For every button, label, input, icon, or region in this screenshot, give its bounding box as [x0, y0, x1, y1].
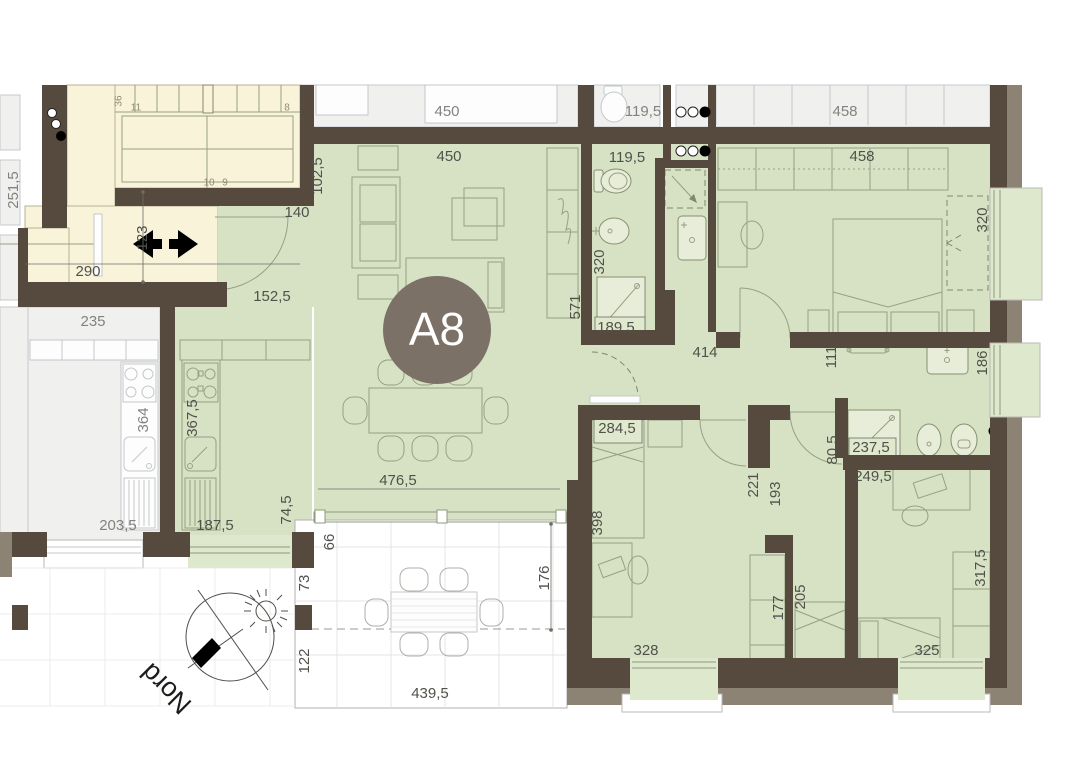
dimension-label: 123: [134, 225, 151, 250]
dimension-label: 439,5: [411, 685, 449, 702]
dimension-label: 367,5: [184, 399, 201, 437]
dimension-label: 450: [434, 103, 459, 120]
sink-icon: [927, 344, 968, 374]
dimension-label: 186: [974, 350, 991, 375]
dimension-label: 221: [745, 472, 762, 497]
dimension-label: 284,5: [598, 420, 636, 437]
dimension-label: 177: [770, 595, 787, 620]
dimension-label: 450: [436, 148, 461, 165]
north-needle-icon: [192, 638, 221, 668]
dimension-label: 237,5: [852, 439, 890, 456]
dimension-label: 140: [284, 204, 309, 221]
dimension-label: 10: [203, 178, 215, 189]
dimension-label: 364: [135, 407, 152, 432]
dimension-label: 119,5: [625, 103, 661, 120]
dimension-label: 398: [589, 510, 606, 535]
dimension-label: 249,5: [854, 468, 892, 485]
dimension-label: 290: [75, 263, 100, 280]
vanity-sink-icon: [678, 216, 706, 260]
unit-badge-label: A8: [409, 303, 465, 355]
dimension-label: 320: [591, 249, 608, 274]
dimension-label: 205: [792, 584, 809, 609]
neighbor-window-recess: [44, 540, 143, 568]
unit-badge: A8: [383, 276, 491, 384]
dimension-label: 458: [849, 148, 874, 165]
floor-plan-a8: A8 Nord 450119,5458450119,5458102,514012…: [0, 0, 1076, 780]
dimension-label: 176: [536, 565, 553, 590]
dimension-label: 80,5: [824, 435, 841, 464]
dimension-label: 187,5: [196, 517, 234, 534]
bidet-icon: [951, 424, 977, 456]
staircase: [115, 85, 300, 188]
dimension-label: 122: [296, 648, 313, 673]
compass-label: Nord: [135, 657, 198, 720]
dimension-label: 36: [114, 95, 125, 107]
dimension-label: 73: [296, 575, 313, 592]
floorplan-page: A8 Nord 450119,5458450119,5458102,514012…: [0, 0, 1076, 780]
dimension-label: 74,5: [278, 495, 295, 524]
dimension-label: 189,5: [597, 319, 635, 336]
dimension-label: 66: [321, 534, 338, 551]
dimension-label: 111: [823, 346, 840, 369]
dimension-label: 325: [914, 642, 939, 659]
toilet-icon: [594, 169, 631, 193]
dimension-label: 571: [567, 294, 584, 319]
dimension-label: 102,5: [309, 157, 326, 195]
dimension-label: 9: [222, 178, 228, 189]
terrace-table: [391, 592, 477, 632]
dimension-label: 320: [974, 207, 991, 232]
dimension-label: 317,5: [972, 549, 989, 587]
dimension-label: 119,5: [609, 149, 645, 166]
dimension-label: 8: [284, 103, 290, 114]
dimension-label: 251,5: [5, 171, 22, 209]
dimension-label: 328: [633, 642, 658, 659]
dimension-label: 203,5: [99, 517, 137, 534]
north-compass: Nord: [135, 589, 288, 720]
dimension-label: 458: [832, 103, 857, 120]
dimension-label: 414: [692, 344, 717, 361]
stair-rail: [203, 85, 213, 113]
dimension-label: 193: [767, 481, 784, 506]
dimension-label: 152,5: [253, 288, 291, 305]
dimension-label: 11: [131, 103, 142, 114]
dimension-label: 235: [80, 313, 105, 330]
dimension-label: 476,5: [379, 472, 417, 489]
